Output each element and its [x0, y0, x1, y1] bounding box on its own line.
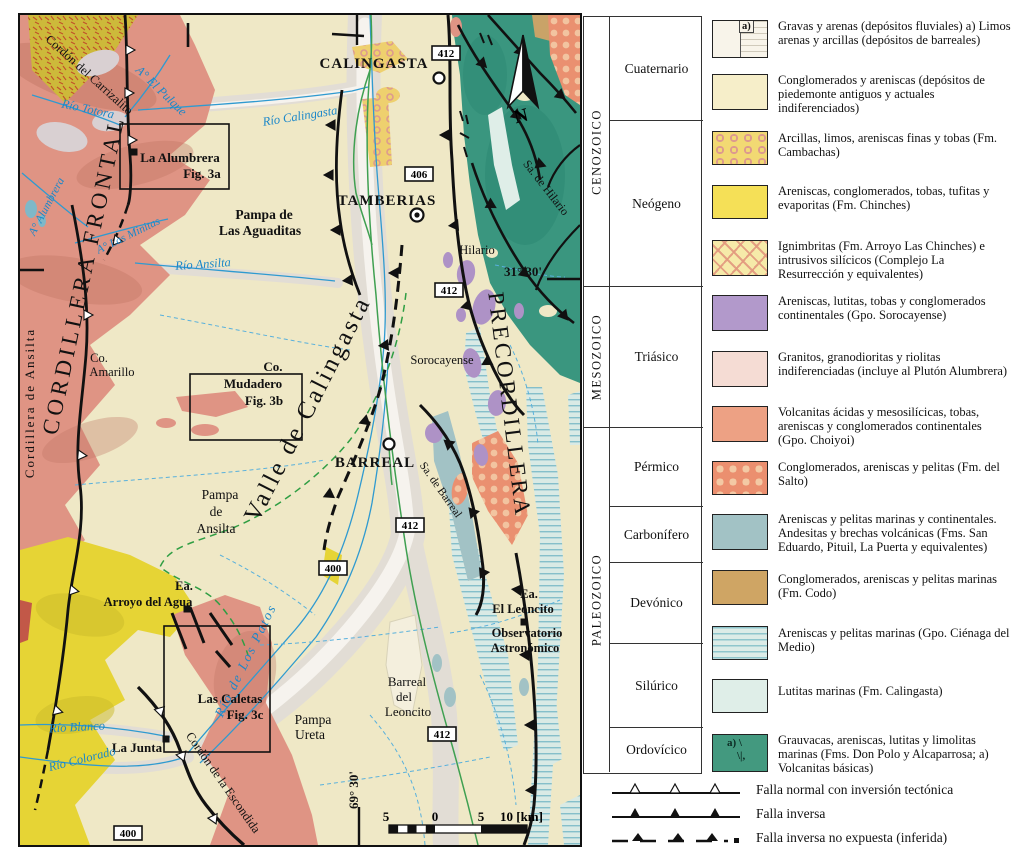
legend-desc-fluvial: Gravas y arenas (depósitos fluviales) a)… [778, 19, 1011, 47]
legend-swatch-choiyoi [712, 406, 768, 442]
label-aguaditas-2: Las Aguaditas [219, 223, 301, 238]
era-label: MESOZOICO [589, 314, 604, 400]
label-la-junta: La Junta [112, 740, 163, 755]
label-calingasta: CALINGASTA [320, 56, 429, 72]
ordovician-mark-1: a) \ [727, 737, 742, 749]
fault-inversa-symbol [608, 805, 748, 823]
route-406-label: 406 [411, 169, 428, 181]
label-co-amarillo-1: Co. [90, 351, 108, 365]
label-co-amarillo-2: Amarillo [89, 365, 134, 379]
period-neogeno: Neógeno [610, 121, 703, 287]
legend-swatch-ignimbritas [712, 240, 768, 276]
legend-swatch-sorocayense [712, 295, 768, 331]
route-shield-400-sw: 400 [114, 826, 142, 840]
label-rio-blanco: Río Blanco [48, 719, 106, 736]
route-412-label: 412 [434, 729, 451, 741]
label-pampa-ureta-2: Ureta [295, 727, 325, 742]
barreal-town-symbol [384, 439, 395, 450]
fault-normal-symbol [608, 781, 748, 799]
label-barreal: BARREAL [335, 455, 415, 471]
legend-desc-calingasta-fm: Lutitas marinas (Fm. Calingasta) [778, 684, 1011, 698]
legend-swatch-delsalto [712, 461, 768, 495]
route-shield-412-leoncito: 412 [428, 727, 456, 741]
fault-legend-inversa: Falla inversa [608, 805, 1011, 823]
fault-legend-inferida: Falla inversa no expuesta (inferida) [608, 829, 1011, 847]
label-barreal-leoncito-3: Leoncito [385, 704, 431, 719]
legend-swatch-granitos [712, 351, 768, 387]
period-label: Devónico [630, 595, 682, 611]
route-shield-412-south: 412 [396, 518, 424, 532]
label-observatorio-1: Observatorio [492, 626, 563, 640]
legend-swatch-codo [712, 570, 768, 605]
la-junta-locality-symbol [163, 736, 170, 743]
ordovician-mark-2: \|, [737, 750, 745, 762]
swatch-a-label: a) [739, 21, 754, 33]
label-hilario: Hilario [459, 243, 494, 257]
era-cenozoico: CENOZOICO [584, 17, 610, 287]
legend-desc-ignimbritas: Ignimbritas (Fm. Arroyo Las Chinches) e … [778, 239, 1011, 281]
era-mesozoico: MESOZOICO [584, 287, 610, 428]
route-shield-412-mid: 412 [435, 283, 463, 297]
geologic-map: 412 406 412 412 400 412 400 N [18, 13, 582, 847]
legend-swatch-cienaga [712, 626, 768, 660]
period-cuaternario: Cuaternario [610, 17, 703, 121]
legend-swatch-carbonifero [712, 514, 768, 550]
legend-swatch-cambachas [712, 131, 768, 165]
label-pampa-ansilta-2: de [210, 504, 223, 519]
period-label: Cuaternario [625, 61, 689, 77]
label-ea-arroyo-1: Ea. [175, 579, 193, 593]
scale-right5: 5 [478, 809, 485, 824]
figure-page: { "map": { "towns": { "calingasta": "CAL… [0, 0, 1011, 847]
route-400-label: 400 [120, 828, 137, 840]
route-412-label: 412 [402, 520, 419, 532]
strat-table: CENOZOICO MESOZOICO PALEOZOICO Cuaternar… [583, 16, 702, 774]
label-tamberias: TAMBERIAS [338, 193, 437, 209]
route-shield-400: 400 [319, 561, 347, 575]
legend-desc-cambachas: Arcillas, limos, areniscas finas y tobas… [778, 131, 1011, 159]
route-412-label: 412 [441, 285, 458, 297]
label-fig3a-2: Fig. 3a [183, 166, 221, 181]
legend-desc-granitos: Granitos, granodioritas y riolitas indif… [778, 350, 1011, 378]
period-label: Ordovícico [626, 742, 687, 758]
period-label: Silúrico [635, 678, 678, 694]
label-latitude: 31° 30' [504, 264, 542, 279]
swatch-half-gravel [713, 21, 741, 57]
legend-swatch-ordovicico: a) \ \|, [712, 734, 768, 772]
period-permico: Pérmico [610, 428, 703, 507]
label-fig3b-2: Fig. 3b [245, 393, 283, 408]
legend-desc-codo: Conglomerados, areniscas y pelitas marin… [778, 572, 1011, 600]
legend-swatch-calingasta-fm [712, 679, 768, 713]
scale-right10: 10 [km] [500, 809, 543, 824]
period-carbonifero: Carbonífero [610, 507, 703, 563]
legend-desc-carbonifero: Areniscas y pelitas marinas y continenta… [778, 512, 1011, 554]
legend-desc-cienaga: Areniscas y pelitas marinas (Gpo. Ciénag… [778, 626, 1011, 654]
label-fig3b-0: Co. [263, 359, 282, 374]
label-ea-leoncito-1: Ea. [520, 587, 538, 601]
leoncito-locality-symbol [521, 619, 528, 626]
label-ea-arroyo-2: Arroyo del Agua [104, 595, 193, 609]
label-observatorio-2: Astronómico [491, 641, 560, 655]
legend-swatch-fluvial: a) [712, 20, 768, 58]
legend-desc-ordovicico: Grauvacas, areniscas, lutitas y limolita… [778, 733, 1011, 775]
period-triasico: Triásico [610, 287, 703, 428]
route-shield-406: 406 [405, 167, 433, 181]
label-sorocayense: Sorocayense [410, 353, 474, 367]
label-fig3a-1: La Alumbrera [140, 150, 220, 165]
period-label: Neógeno [632, 196, 681, 212]
label-ea-leoncito-2: El Leoncito [492, 602, 553, 616]
label-pampa-ansilta-1: Pampa [202, 487, 239, 502]
legend-swatch-chinches [712, 185, 768, 219]
scale-zero: 0 [432, 809, 439, 824]
label-aguaditas-1: Pampa de [235, 207, 292, 222]
label-barreal-leoncito-1: Barreal [388, 674, 427, 689]
period-label: Pérmico [634, 459, 679, 475]
route-412-label: 412 [438, 48, 455, 60]
period-label: Carbonífero [624, 527, 689, 543]
alumbrera-locality-symbol [131, 149, 138, 156]
legend-desc-piedmont: Conglomerados y areniscas (depósitos de … [778, 73, 1011, 115]
era-paleozoico: PALEOZOICO [584, 428, 610, 772]
legend-desc-choiyoi: Volcanitas ácidas y mesosilícicas, tobas… [778, 405, 1011, 447]
fault-normal-label: Falla normal con inversión tectónica [756, 782, 953, 798]
label-longitude: 69° 30' [346, 771, 361, 809]
route-400-label: 400 [325, 563, 342, 575]
legend-swatch-piedmont [712, 74, 768, 110]
fault-inferida-label: Falla inversa no expuesta (inferida) [756, 830, 947, 846]
period-devonico: Devónico [610, 563, 703, 644]
fault-inversa-label: Falla inversa [756, 806, 825, 822]
era-label: PALEOZOICO [589, 554, 604, 646]
label-fig3c-2: Fig. 3c [227, 707, 264, 722]
legend-desc-delsalto: Conglomerados, areniscas y pelitas (Fm. … [778, 460, 1011, 488]
label-cordillera-ansilta: Cordillera de Ansilta [22, 328, 37, 478]
era-label: CENOZOICO [589, 109, 604, 195]
fault-legend-normal: Falla normal con inversión tectónica [608, 781, 1011, 799]
period-silurico: Silúrico [610, 644, 703, 728]
label-pampa-ureta-1: Pampa [295, 712, 332, 727]
period-label: Triásico [635, 349, 679, 365]
label-pampa-ansilta-3: Ansilta [197, 521, 236, 536]
calingasta-town-symbol [434, 73, 445, 84]
period-ordovicico: Ordovícico [610, 728, 703, 772]
label-fig3b-1: Mudadero [224, 376, 282, 391]
label-barreal-leoncito-2: del [396, 689, 412, 704]
scale-left5: 5 [383, 809, 390, 824]
map-canvas: 412 406 412 412 400 412 400 N [20, 15, 580, 845]
fault-inferida-symbol [608, 829, 748, 847]
legend-desc-chinches: Areniscas, conglomerados, tobas, tufitas… [778, 184, 1011, 212]
route-shield-412-north: 412 [432, 46, 460, 60]
legend-desc-sorocayense: Areniscas, lutitas, tobas y conglomerado… [778, 294, 1011, 322]
